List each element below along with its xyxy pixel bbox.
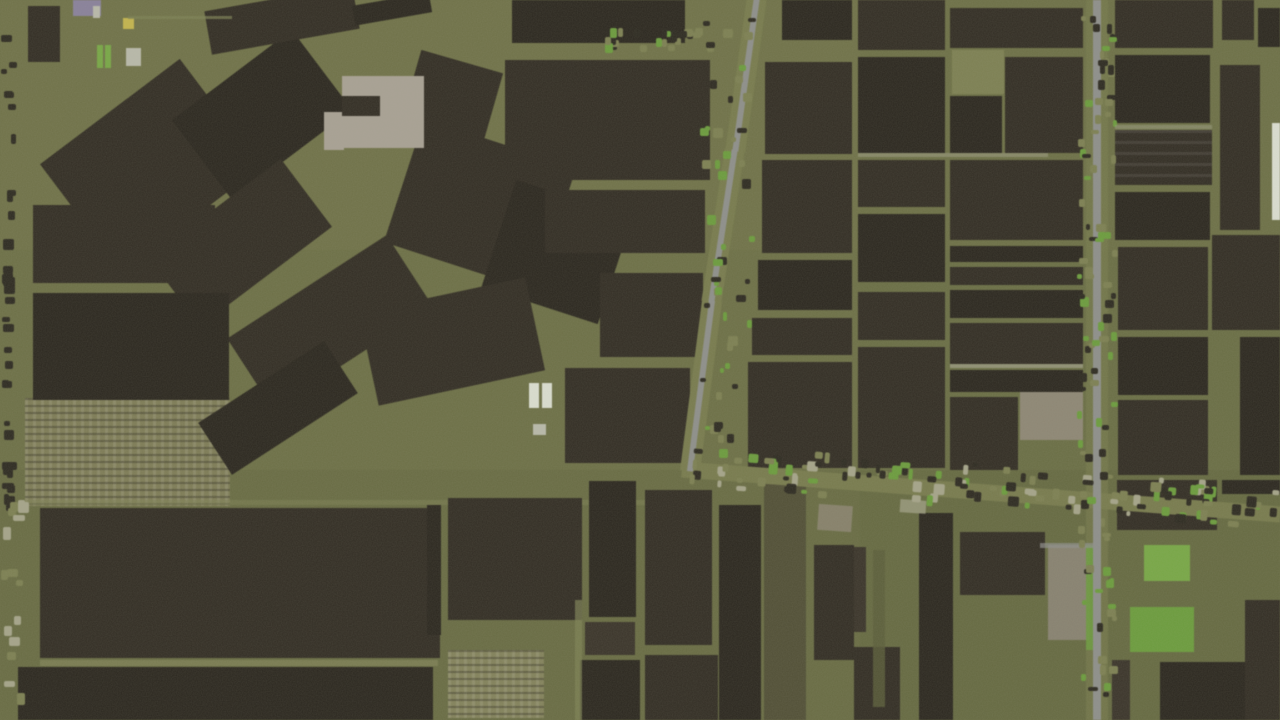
field-plot bbox=[758, 260, 852, 310]
field-plot bbox=[1240, 337, 1280, 475]
field-plot bbox=[1258, 8, 1280, 47]
field-plot bbox=[40, 508, 440, 658]
field-plot bbox=[762, 160, 852, 253]
tan-field bbox=[1020, 392, 1083, 440]
tree-line bbox=[1, 0, 17, 515]
field-plot bbox=[585, 622, 635, 655]
field-plot bbox=[580, 660, 640, 720]
poi-marker bbox=[123, 18, 134, 29]
tree-line bbox=[0, 492, 30, 718]
gravel-patch bbox=[900, 499, 927, 514]
field-plot bbox=[1118, 400, 1208, 475]
field-plot bbox=[1118, 247, 1208, 330]
path bbox=[128, 16, 232, 19]
field-plot bbox=[1222, 0, 1254, 40]
map-view[interactable] bbox=[0, 0, 1280, 720]
field-plot bbox=[545, 190, 705, 253]
field-plot bbox=[752, 318, 852, 355]
field-plot bbox=[950, 290, 1083, 318]
tree-line bbox=[698, 0, 756, 468]
field-plot bbox=[589, 481, 636, 617]
field-plot bbox=[33, 205, 215, 283]
poi-marker bbox=[97, 45, 103, 68]
field-plot bbox=[28, 6, 60, 62]
building bbox=[1272, 123, 1280, 220]
divider-line bbox=[950, 364, 1083, 368]
field-plot bbox=[645, 490, 712, 645]
field-plot bbox=[1212, 235, 1280, 330]
field-plot bbox=[1115, 130, 1212, 185]
field-plot bbox=[919, 513, 953, 720]
field-plot bbox=[1220, 65, 1260, 230]
path bbox=[40, 660, 438, 666]
meadow-patch bbox=[1130, 607, 1194, 652]
crop-rows bbox=[448, 650, 544, 718]
field-plot bbox=[33, 293, 229, 400]
field-plot bbox=[18, 667, 433, 720]
field-plot bbox=[950, 96, 1002, 153]
building bbox=[533, 424, 546, 435]
field-plot bbox=[1115, 55, 1210, 123]
field-plot bbox=[645, 655, 718, 720]
poi-marker bbox=[105, 45, 111, 68]
field-plot bbox=[448, 498, 582, 620]
field-plot bbox=[858, 292, 945, 340]
field-plot bbox=[782, 0, 852, 40]
field-plot bbox=[960, 532, 1045, 595]
building bbox=[126, 48, 141, 66]
map-shapes-layer bbox=[0, 0, 1280, 720]
field-plot bbox=[1115, 192, 1210, 240]
tree-line bbox=[1076, 0, 1118, 720]
field-plot bbox=[858, 160, 945, 207]
field-plot bbox=[814, 545, 854, 660]
field-plot bbox=[950, 8, 1083, 48]
field-plot bbox=[719, 505, 761, 720]
gravel-patch bbox=[817, 504, 853, 532]
meadow-patch bbox=[1144, 545, 1190, 581]
poi-marker bbox=[93, 6, 100, 18]
farmyard bbox=[324, 112, 344, 150]
field-plot bbox=[1005, 57, 1083, 153]
field-plot bbox=[858, 57, 945, 153]
divider-line bbox=[858, 153, 1048, 157]
field-plot bbox=[600, 273, 703, 357]
field-plot bbox=[858, 214, 945, 282]
field-plot bbox=[950, 397, 1018, 470]
field-plot bbox=[950, 267, 1083, 285]
field-plot bbox=[1118, 337, 1208, 395]
field-plot bbox=[858, 347, 945, 468]
field-plot bbox=[427, 505, 441, 635]
field-plot bbox=[858, 0, 945, 50]
field-plot bbox=[342, 96, 380, 116]
hedge-strip bbox=[873, 550, 885, 707]
field-plot bbox=[1115, 0, 1213, 48]
building bbox=[542, 383, 552, 408]
divider-line bbox=[1115, 125, 1212, 129]
field-plot bbox=[1160, 662, 1245, 720]
field-plot bbox=[764, 480, 806, 720]
field-plot bbox=[950, 370, 1083, 392]
field-plot bbox=[765, 62, 852, 154]
grass-patch bbox=[952, 50, 1004, 94]
path bbox=[575, 600, 582, 720]
building bbox=[529, 383, 539, 408]
field-plot bbox=[950, 246, 1083, 262]
field-plot bbox=[854, 547, 866, 632]
field-plot bbox=[565, 368, 690, 463]
field-plot bbox=[950, 323, 1083, 364]
crop-rows bbox=[25, 398, 230, 506]
field-plot bbox=[950, 160, 1083, 240]
field-plot bbox=[505, 60, 710, 180]
field-plot bbox=[1245, 600, 1280, 720]
